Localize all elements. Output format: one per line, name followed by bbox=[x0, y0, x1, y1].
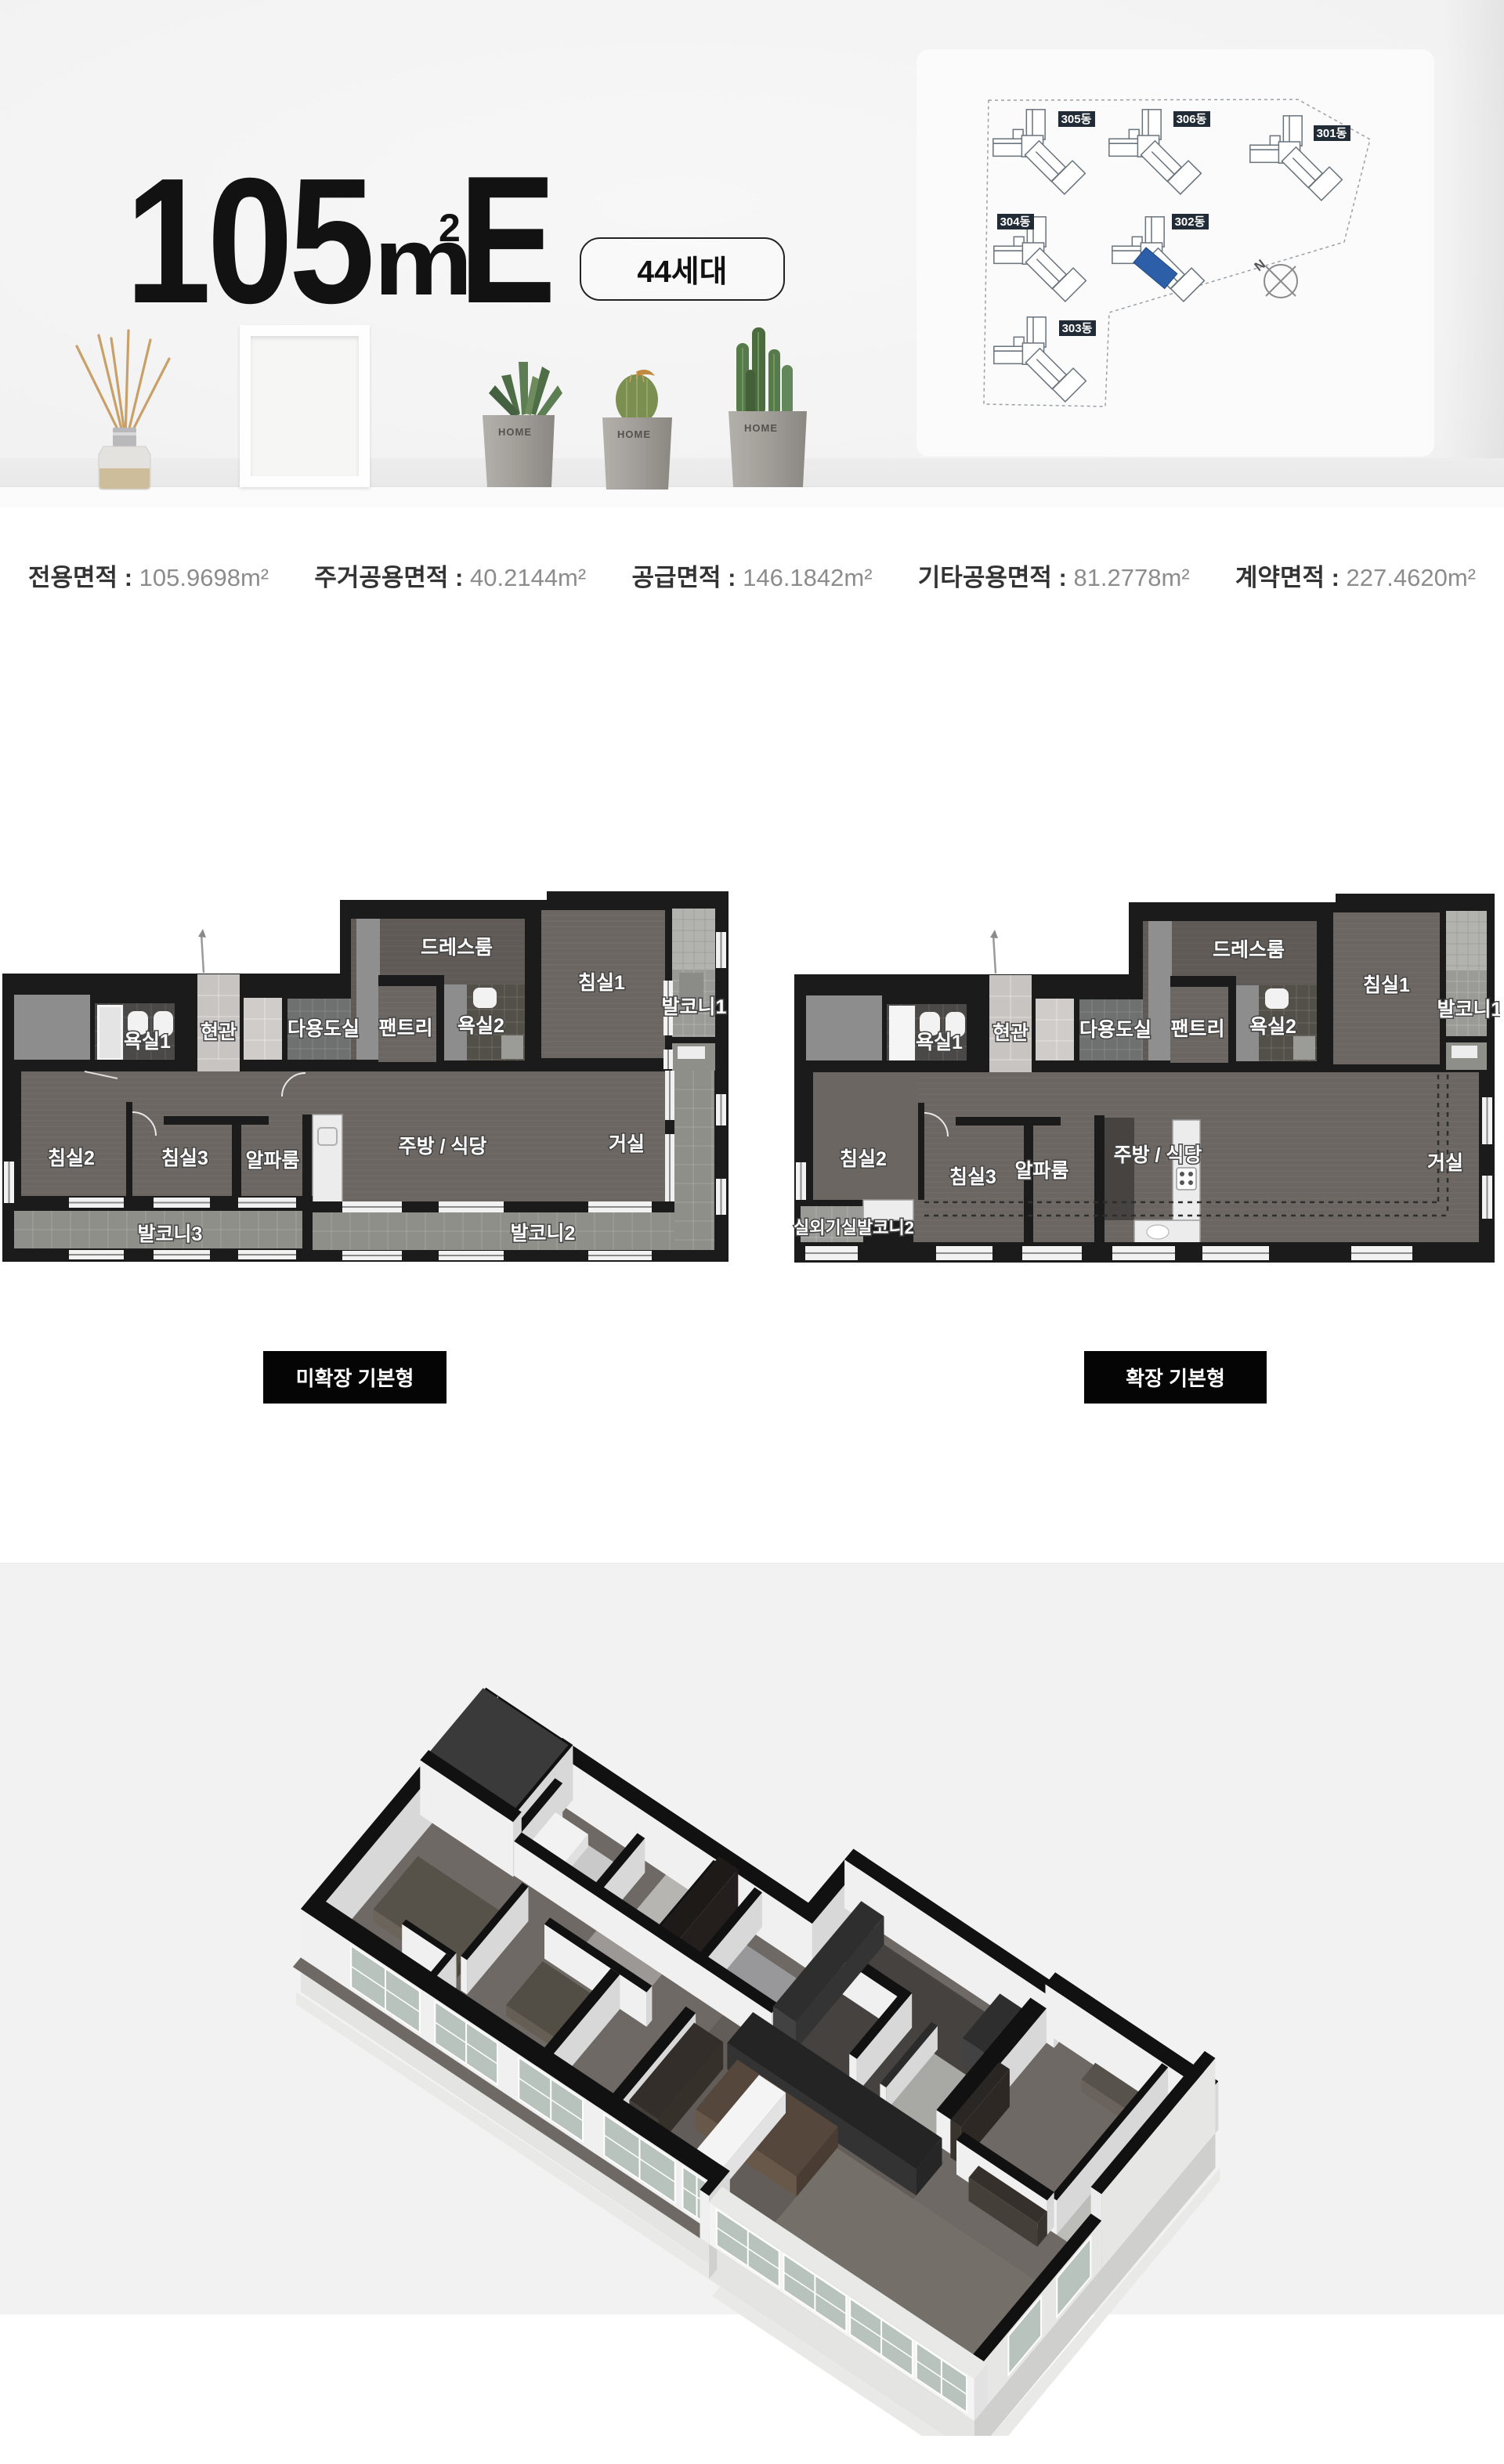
svg-text:팬트리: 팬트리 bbox=[378, 1017, 432, 1039]
svg-text:침실2: 침실2 bbox=[840, 1148, 887, 1170]
svg-text:HOME: HOME bbox=[498, 426, 532, 438]
svg-text:N: N bbox=[1252, 257, 1268, 275]
svg-text:침실1: 침실1 bbox=[1363, 974, 1410, 996]
svg-text:침실1: 침실1 bbox=[578, 972, 625, 994]
svg-text:303동: 303동 bbox=[1062, 322, 1093, 335]
svg-text:알파룸: 알파룸 bbox=[245, 1150, 299, 1172]
svg-text:거실: 거실 bbox=[609, 1133, 645, 1155]
svg-text:현관: 현관 bbox=[201, 1021, 237, 1043]
svg-text:다용도실: 다용도실 bbox=[1079, 1019, 1151, 1041]
svg-text:다용도실: 다용도실 bbox=[287, 1018, 360, 1040]
svg-text:HOME: HOME bbox=[744, 422, 778, 434]
svg-text:302동: 302동 bbox=[1175, 215, 1206, 229]
svg-text:발코니3: 발코니3 bbox=[138, 1223, 203, 1245]
svg-text:주방 / 식당: 주방 / 식당 bbox=[1114, 1144, 1202, 1166]
svg-text:드레스룸: 드레스룸 bbox=[421, 937, 493, 959]
svg-text:발코니2: 발코니2 bbox=[511, 1223, 576, 1245]
svg-text:드레스룸: 드레스룸 bbox=[1213, 939, 1285, 961]
svg-text:팬트리: 팬트리 bbox=[1170, 1018, 1224, 1040]
svg-text:발코니1: 발코니1 bbox=[1437, 999, 1500, 1021]
svg-text:침실3: 침실3 bbox=[949, 1166, 996, 1188]
svg-text:침실3: 침실3 bbox=[161, 1147, 208, 1169]
svg-text:알파룸: 알파룸 bbox=[1014, 1160, 1068, 1182]
svg-text:욕실1: 욕실1 bbox=[124, 1031, 171, 1053]
svg-text:거실: 거실 bbox=[1427, 1152, 1463, 1174]
svg-text:현관: 현관 bbox=[992, 1022, 1029, 1044]
svg-text:욕실2: 욕실2 bbox=[457, 1015, 504, 1037]
svg-text:HOME: HOME bbox=[617, 428, 651, 440]
svg-text:301동: 301동 bbox=[1317, 127, 1347, 140]
svg-text:305동: 305동 bbox=[1061, 113, 1092, 126]
svg-text:실외기실발코니2: 실외기실발코니2 bbox=[794, 1218, 914, 1237]
svg-text:침실2: 침실2 bbox=[48, 1147, 95, 1169]
svg-text:발코니1: 발코니1 bbox=[662, 996, 727, 1018]
svg-text:306동: 306동 bbox=[1177, 113, 1207, 126]
svg-text:욕실1: 욕실1 bbox=[916, 1031, 963, 1053]
svg-text:304동: 304동 bbox=[1000, 215, 1031, 229]
svg-text:주방 / 식당: 주방 / 식당 bbox=[399, 1136, 487, 1158]
svg-text:욕실2: 욕실2 bbox=[1249, 1016, 1296, 1038]
